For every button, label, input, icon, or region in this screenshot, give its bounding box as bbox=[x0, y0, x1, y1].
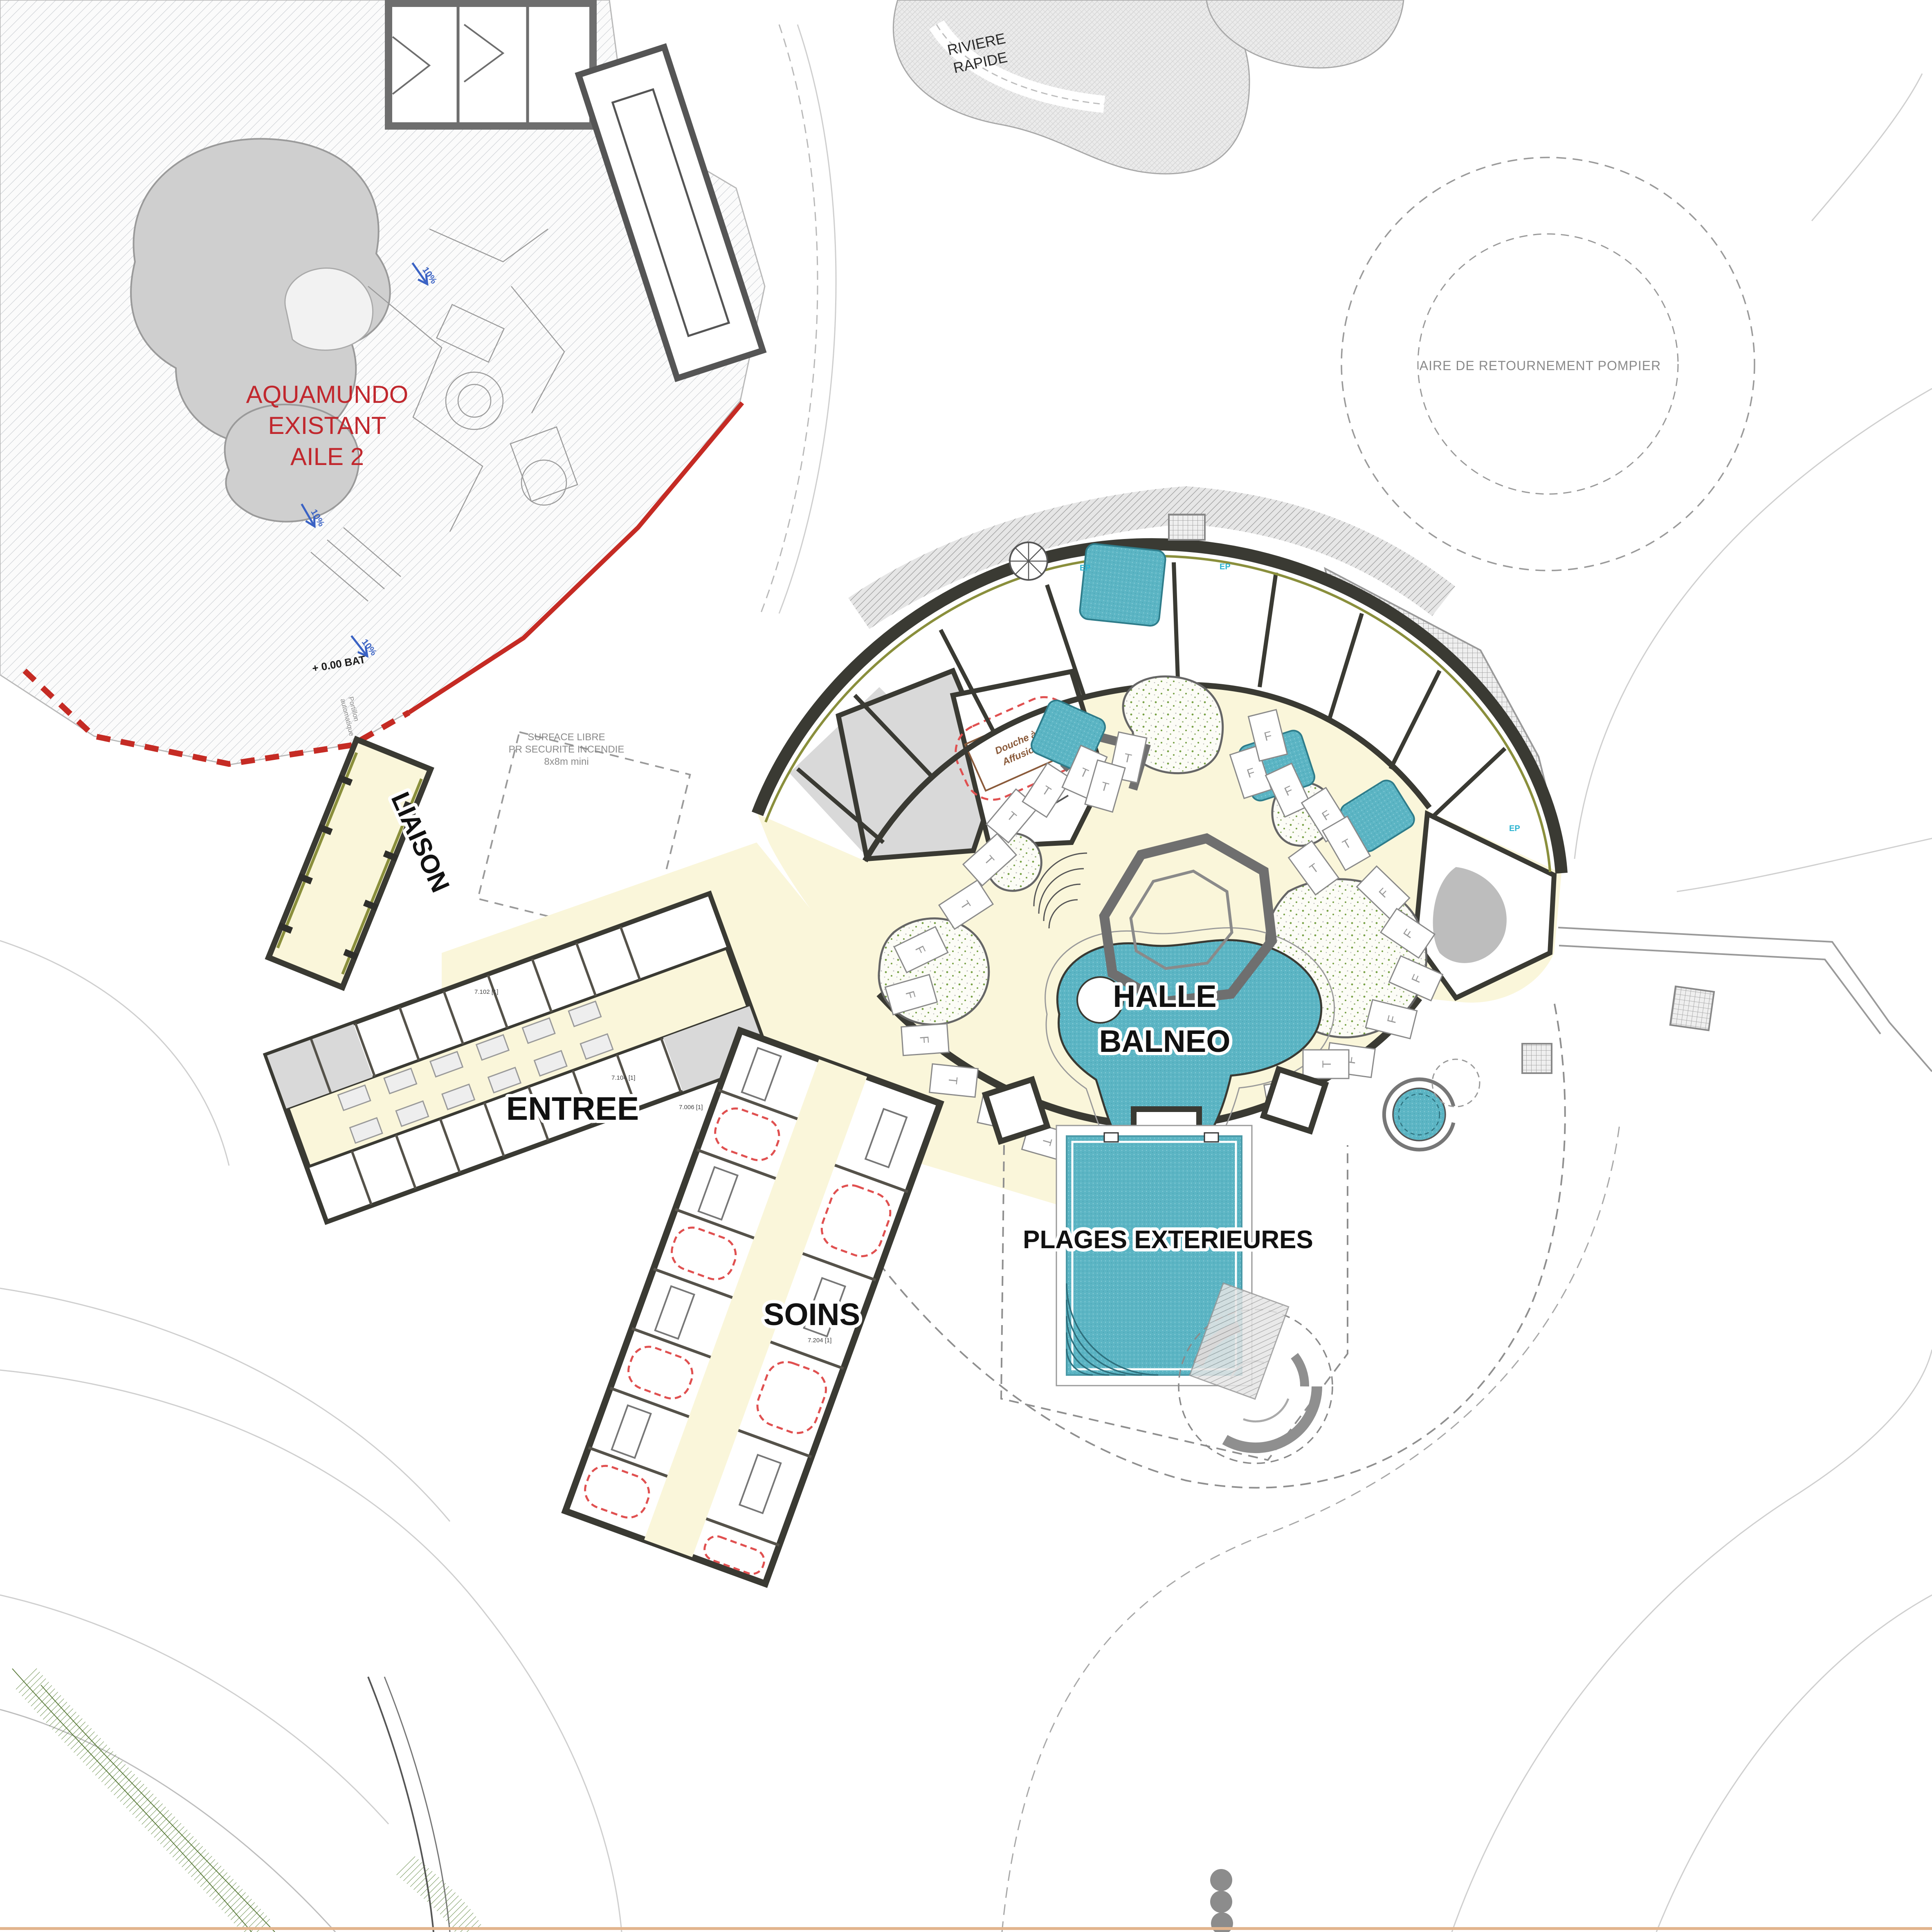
existing-building-top bbox=[389, 3, 593, 126]
plages-label: PLAGES EXTERIEURES bbox=[1023, 1226, 1313, 1254]
site-plan-drawing: AIRE DE RETOURNEMENT POMPIER RIVIERE RAP… bbox=[0, 0, 1932, 1932]
round-pool bbox=[1384, 1079, 1453, 1150]
svg-text:T: T bbox=[1320, 1060, 1334, 1068]
site-plan-page: AIRE DE RETOURNEMENT POMPIER RIVIERE RAP… bbox=[0, 0, 1932, 1932]
spiral-stair bbox=[1010, 542, 1047, 580]
svg-text:EXISTANT: EXISTANT bbox=[268, 412, 386, 439]
ep-label: EP bbox=[1220, 562, 1231, 571]
room-tag: 7.204 [1] bbox=[808, 1337, 831, 1344]
svg-text:F: F bbox=[917, 1036, 931, 1044]
surface-label-2: PR SECURITE INCENDIE bbox=[509, 744, 625, 755]
room-tag: 7.104 [1] bbox=[611, 1074, 635, 1081]
aire-label: AIRE DE RETOURNEMENT POMPIER bbox=[1420, 358, 1661, 373]
surface-label-3: 8x8m mini bbox=[544, 756, 589, 767]
overlay-dot bbox=[1210, 1869, 1232, 1891]
ep-label: EP bbox=[1080, 564, 1091, 573]
halle-label-2: BALNEO bbox=[1099, 1024, 1231, 1059]
lounger: T bbox=[1303, 1050, 1349, 1078]
bottom-edge-line bbox=[0, 1927, 1932, 1930]
svg-text:AQUAMUNDO: AQUAMUNDO bbox=[246, 381, 409, 408]
lounger: F bbox=[901, 1024, 949, 1056]
soins-label: SOINS bbox=[764, 1297, 860, 1332]
ep-label: EP bbox=[1509, 824, 1520, 833]
lounger: T bbox=[930, 1064, 978, 1097]
svg-text:AILE 2: AILE 2 bbox=[290, 443, 364, 470]
room-tag: 7.102 [1] bbox=[474, 988, 498, 995]
halle-label-1: HALLE bbox=[1113, 979, 1216, 1014]
small-pool bbox=[1079, 543, 1166, 627]
surface-label-1: SURFACE LIBRE bbox=[528, 732, 605, 743]
svg-text:T: T bbox=[946, 1076, 960, 1085]
room-tag: 7.006 [1] bbox=[679, 1104, 703, 1111]
overlay-dots bbox=[1210, 1869, 1233, 1932]
entree-label: ENTREE bbox=[506, 1090, 639, 1127]
overlay-dot bbox=[1210, 1891, 1232, 1913]
